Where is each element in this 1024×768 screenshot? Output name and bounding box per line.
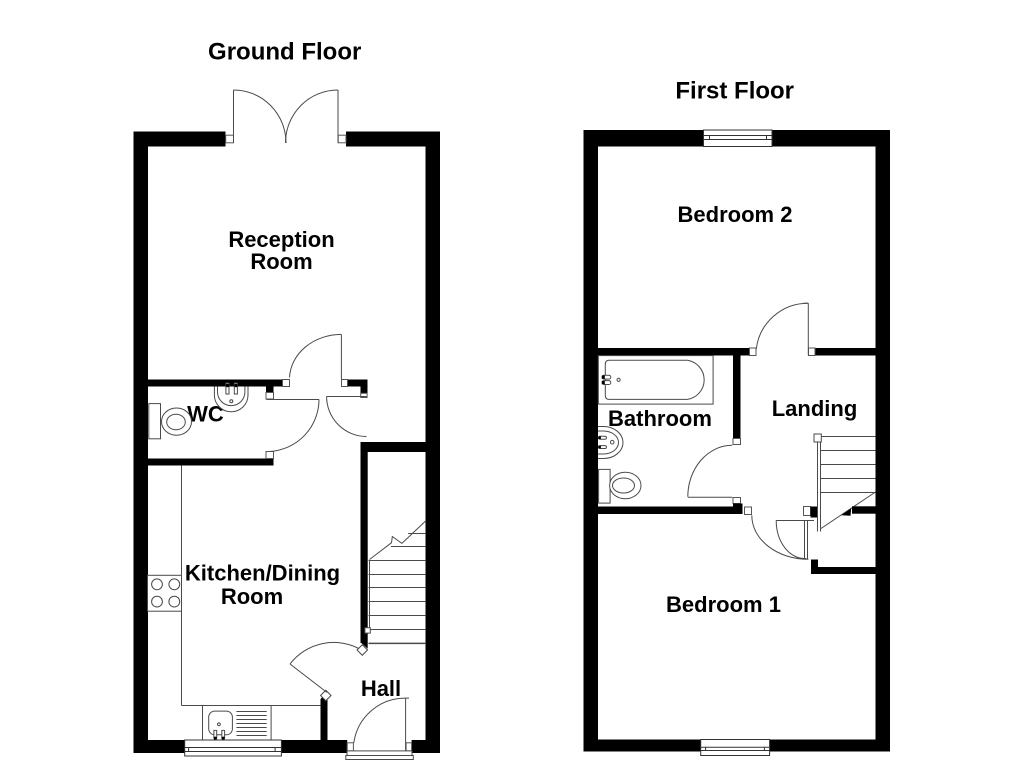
svg-text:Kitchen/Dining: Kitchen/Dining xyxy=(185,561,340,586)
svg-text:Landing: Landing xyxy=(772,396,858,421)
svg-text:Room: Room xyxy=(221,584,283,609)
svg-text:Ground Floor: Ground Floor xyxy=(208,39,361,66)
svg-text:Room: Room xyxy=(250,249,312,274)
svg-text:Hall: Hall xyxy=(361,676,401,701)
svg-text:Bedroom 1: Bedroom 1 xyxy=(666,592,781,617)
svg-text:Bedroom 2: Bedroom 2 xyxy=(678,202,793,227)
svg-text:First Floor: First Floor xyxy=(675,78,794,105)
svg-text:Bathroom: Bathroom xyxy=(608,406,712,431)
